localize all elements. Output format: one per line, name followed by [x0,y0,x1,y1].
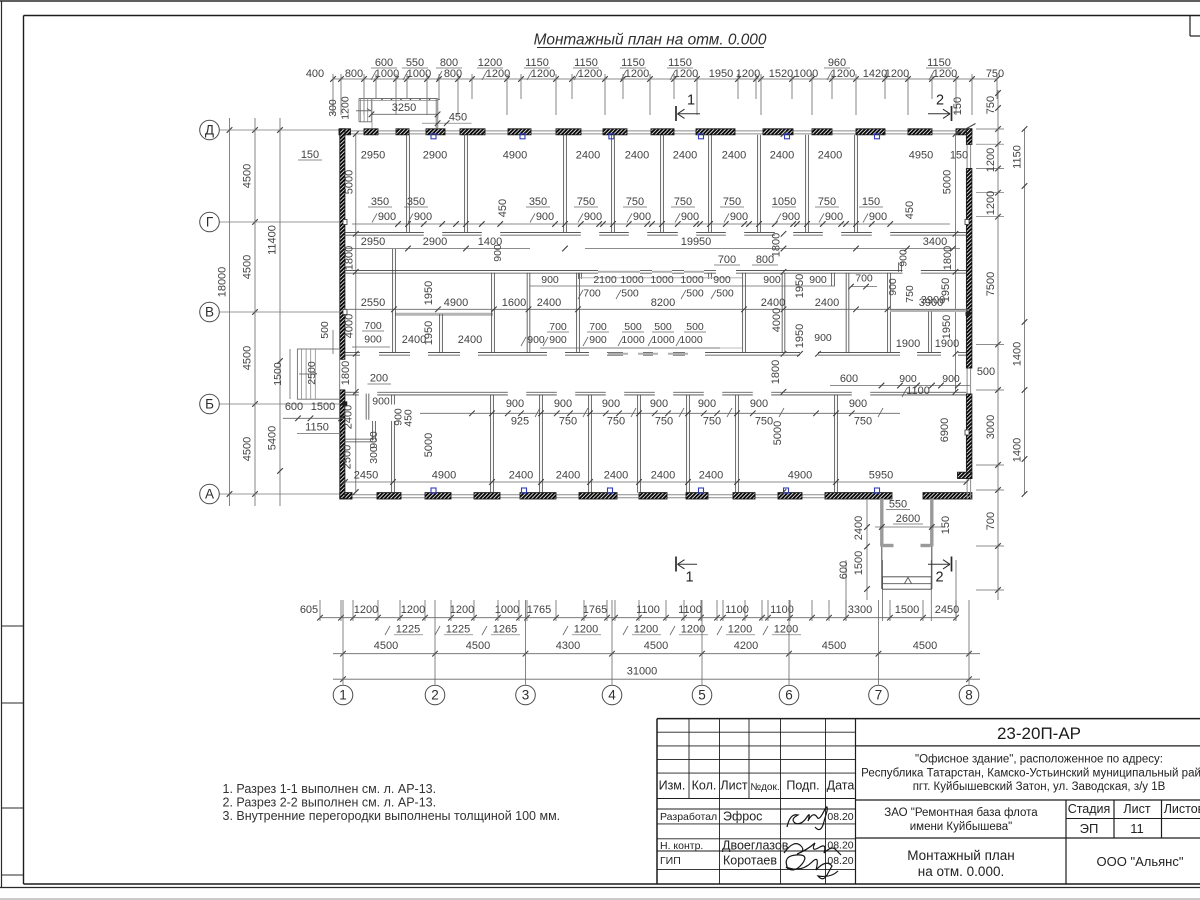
svg-text:500: 500 [654,321,672,333]
svg-text:3000: 3000 [985,415,997,439]
svg-text:450: 450 [904,201,916,219]
svg-text:2: 2 [431,688,439,703]
svg-text:900: 900 [378,211,396,223]
svg-text:Монтажный план: Монтажный план [907,848,1015,863]
svg-text:1200: 1200 [674,68,698,80]
svg-text:1200: 1200 [831,68,855,80]
svg-text:4900: 4900 [503,150,527,162]
svg-text:1500: 1500 [272,362,284,386]
svg-text:2600: 2600 [896,513,920,525]
svg-text:1520: 1520 [769,68,793,80]
svg-text:900: 900 [414,211,432,223]
svg-text:1200: 1200 [578,68,602,80]
svg-text:700: 700 [364,320,382,332]
svg-text:1800: 1800 [770,360,782,384]
svg-text:900: 900 [549,334,567,346]
svg-text:3250: 3250 [392,102,416,114]
svg-text:2400: 2400 [853,516,865,540]
svg-text:1200: 1200 [574,624,598,636]
svg-text:500: 500 [624,321,642,333]
svg-text:2400: 2400 [509,470,533,482]
svg-text:1: 1 [685,570,693,586]
svg-text:750: 750 [674,196,692,208]
svg-text:750: 750 [986,68,1004,80]
svg-text:Кол.: Кол. [692,779,717,793]
svg-text:750: 750 [818,196,836,208]
svg-text:2400: 2400 [625,150,649,162]
svg-text:150: 150 [862,196,880,208]
svg-text:1225: 1225 [446,624,470,636]
svg-text:Подп.: Подп. [786,779,819,793]
svg-text:4900: 4900 [444,297,468,309]
svg-text:5400: 5400 [267,426,279,450]
svg-text:2950: 2950 [361,150,385,162]
svg-text:900: 900 [527,334,545,346]
svg-text:3: 3 [522,688,530,703]
svg-text:1200: 1200 [885,68,909,80]
svg-text:550: 550 [889,499,907,511]
svg-text:2400: 2400 [673,150,697,162]
svg-text:2450: 2450 [935,604,959,616]
svg-text:имени Куйбышева": имени Куйбышева" [910,821,1013,833]
svg-text:1000: 1000 [620,274,644,286]
svg-text:750: 750 [577,196,595,208]
svg-text:900: 900 [372,396,390,408]
svg-text:500: 500 [686,288,704,300]
svg-text:350: 350 [407,196,425,208]
svg-text:1950: 1950 [423,281,435,305]
svg-text:1100: 1100 [725,604,749,616]
svg-text:700: 700 [549,321,567,333]
svg-text:500: 500 [686,321,704,333]
svg-text:450: 450 [449,112,467,124]
svg-text:ЗАО "Ремонтная база флота: ЗАО "Ремонтная база флота [884,807,1038,819]
svg-text:А: А [205,487,214,502]
svg-text:900: 900 [869,211,887,223]
svg-text:1150: 1150 [305,422,329,434]
svg-text:1000: 1000 [650,274,674,286]
svg-text:1200: 1200 [625,68,649,80]
svg-text:1000: 1000 [679,334,703,346]
svg-text:7: 7 [875,688,883,703]
svg-text:2400: 2400 [537,297,561,309]
svg-text:1900: 1900 [935,338,959,350]
svg-text:2400: 2400 [576,150,600,162]
svg-text:1225: 1225 [396,624,420,636]
svg-text:7500: 7500 [985,272,997,296]
svg-text:8200: 8200 [651,297,675,309]
svg-text:2100: 2100 [593,274,617,286]
svg-text:600: 600 [285,401,303,413]
svg-text:5000: 5000 [772,421,784,445]
svg-text:900: 900 [849,398,867,410]
svg-text:1050: 1050 [772,196,796,208]
svg-text:750: 750 [854,416,872,428]
svg-text:11400: 11400 [267,225,279,255]
svg-text:1500: 1500 [311,401,335,413]
svg-text:750: 750 [655,416,673,428]
svg-text:ООО "Альянс": ООО "Альянс" [1097,854,1184,869]
svg-text:2500: 2500 [306,361,318,385]
svg-text:пгт. Куйбышевский Затон, ул. З: пгт. Куйбышевский Затон, ул. Заводская, … [913,781,1166,793]
svg-text:800: 800 [756,254,774,266]
svg-text:4300: 4300 [556,640,580,652]
svg-text:19950: 19950 [681,236,712,248]
svg-text:1200: 1200 [774,624,798,636]
svg-text:4500: 4500 [242,437,254,461]
svg-text:Изм.: Изм. [659,779,686,793]
svg-text:5000: 5000 [344,170,356,194]
svg-text:600: 600 [840,373,858,385]
svg-text:3900: 3900 [921,295,945,307]
svg-text:1200: 1200 [681,624,705,636]
svg-text:Лист: Лист [720,779,747,793]
svg-text:1200: 1200 [486,68,510,80]
svg-text:1200: 1200 [531,68,555,80]
svg-text:750: 750 [985,96,997,114]
svg-text:4950: 4950 [909,150,933,162]
svg-text:150: 150 [301,149,319,161]
svg-text:1000: 1000 [680,274,704,286]
svg-text:900: 900 [633,211,651,223]
svg-text:1. Разрез 1-1 выполнен см. л.: 1. Разрез 1-1 выполнен см. л. АР-13. [223,782,437,796]
svg-text:1100: 1100 [636,604,660,616]
svg-text:08.20: 08.20 [827,811,853,823]
svg-text:Республика Татарстан, Камско-У: Республика Татарстан, Камско-Устьинский … [861,768,1200,780]
svg-text:1950: 1950 [941,315,953,339]
svg-text:1200: 1200 [340,96,352,120]
svg-text:1420: 1420 [863,68,887,80]
svg-text:Г: Г [206,215,214,230]
svg-text:2400: 2400 [604,470,628,482]
svg-text:ГИП: ГИП [660,855,681,867]
svg-text:700: 700 [855,273,873,285]
svg-text:2400: 2400 [458,334,482,346]
svg-text:Разработал: Разработал [660,811,717,823]
svg-text:4200: 4200 [734,640,758,652]
svg-text:300: 300 [327,99,339,117]
svg-text:700: 700 [589,321,607,333]
svg-text:900: 900 [814,332,832,344]
svg-text:4500: 4500 [242,255,254,279]
svg-text:1265: 1265 [493,624,517,636]
svg-text:900: 900 [492,244,504,262]
svg-text:800: 800 [444,68,462,80]
svg-text:11: 11 [1130,821,1144,836]
svg-text:1900: 1900 [896,338,920,350]
svg-text:1765: 1765 [527,604,551,616]
svg-text:1800: 1800 [942,246,954,270]
svg-text:750: 750 [904,285,916,303]
svg-text:2: 2 [935,570,943,586]
svg-text:на отм. 0.000.: на отм. 0.000. [918,864,1004,879]
svg-text:1200: 1200 [450,604,474,616]
svg-text:2950: 2950 [361,236,385,248]
svg-text:1000: 1000 [621,334,645,346]
svg-text:925: 925 [511,416,529,428]
svg-text:2900: 2900 [423,150,447,162]
svg-text:900: 900 [730,211,748,223]
svg-text:200: 200 [370,373,388,385]
svg-text:2. Разрез 2-2 выполнен см. л.: 2. Разрез 2-2 выполнен см. л. АР-13. [223,796,437,810]
svg-text:900: 900 [898,249,910,267]
svg-text:"Офисное здание", расположенно: "Офисное здание", расположенное по адрес… [915,754,1163,766]
svg-text:1500: 1500 [853,551,865,575]
svg-text:1950: 1950 [709,68,733,80]
svg-text:1200: 1200 [401,604,425,616]
svg-text:1800: 1800 [340,361,352,385]
svg-text:900: 900 [589,334,607,346]
svg-text:2400: 2400 [343,405,355,429]
svg-text:2400: 2400 [761,297,785,309]
svg-text:500: 500 [977,366,995,378]
svg-text:600: 600 [838,561,850,579]
svg-text:900: 900 [825,211,843,223]
svg-text:Б: Б [205,397,214,412]
svg-text:ЭП: ЭП [1080,821,1099,836]
svg-text:5950: 5950 [869,470,893,482]
svg-text:1200: 1200 [933,68,957,80]
svg-text:4500: 4500 [644,640,668,652]
svg-text:900: 900 [763,274,781,286]
svg-text:1765: 1765 [583,604,607,616]
svg-text:1400: 1400 [1012,438,1024,462]
svg-text:350: 350 [371,196,389,208]
svg-text:4500: 4500 [466,640,490,652]
svg-text:2400: 2400 [402,334,426,346]
svg-text:1800: 1800 [344,246,356,270]
svg-text:700: 700 [583,288,601,300]
svg-text:2500: 2500 [342,445,354,469]
svg-text:6900: 6900 [939,418,951,442]
svg-text:8: 8 [965,688,973,703]
svg-text:900: 900 [368,431,380,449]
svg-text:1200: 1200 [634,624,658,636]
svg-text:2900: 2900 [423,236,447,248]
svg-text:900: 900 [541,274,559,286]
svg-text:150: 150 [940,516,952,534]
svg-text:4500: 4500 [913,640,937,652]
svg-text:3. Внутренние перегородки выпо: 3. Внутренние перегородки выполнены толщ… [223,809,561,823]
svg-text:350: 350 [529,196,547,208]
svg-text:1500: 1500 [895,604,919,616]
svg-text:750: 750 [626,196,644,208]
svg-text:4500: 4500 [242,164,254,188]
svg-text:№док.: №док. [750,782,779,793]
svg-text:450: 450 [497,199,509,217]
svg-text:750: 750 [755,416,773,428]
svg-text:750: 750 [703,416,721,428]
svg-text:08.20: 08.20 [827,840,853,852]
svg-text:900: 900 [584,211,602,223]
svg-text:4900: 4900 [432,470,456,482]
svg-text:900: 900 [650,398,668,410]
svg-text:5: 5 [698,688,706,703]
svg-text:1100: 1100 [770,604,794,616]
svg-text:Стадия: Стадия [1068,802,1111,816]
svg-text:1200: 1200 [985,148,997,172]
svg-text:23-20П-АР: 23-20П-АР [997,724,1081,743]
svg-text:1000: 1000 [407,68,431,80]
svg-text:605: 605 [300,604,318,616]
svg-text:900: 900 [750,398,768,410]
svg-text:700: 700 [718,254,736,266]
svg-text:2400: 2400 [815,297,839,309]
svg-text:1400: 1400 [1012,342,1024,366]
svg-text:1000: 1000 [794,68,818,80]
svg-text:900: 900 [942,373,960,385]
svg-text:Эфрос: Эфрос [723,810,762,824]
svg-text:6: 6 [785,688,793,703]
svg-text:1100: 1100 [678,604,702,616]
svg-text:Двоеглазов: Двоеглазов [722,839,789,853]
svg-text:900: 900 [782,211,800,223]
svg-text:900: 900 [681,211,699,223]
svg-text:В: В [205,305,214,320]
svg-text:1200: 1200 [354,604,378,616]
svg-text:2400: 2400 [556,470,580,482]
svg-text:750: 750 [723,196,741,208]
svg-text:4500: 4500 [242,346,254,370]
svg-text:700: 700 [985,512,997,530]
svg-text:900: 900 [506,398,524,410]
svg-text:1000: 1000 [375,68,399,80]
svg-text:4500: 4500 [822,640,846,652]
svg-text:1000: 1000 [651,334,675,346]
svg-text:900: 900 [698,398,716,410]
svg-text:2400: 2400 [770,150,794,162]
svg-text:750: 750 [559,416,577,428]
svg-text:31000: 31000 [627,666,658,678]
svg-text:1600: 1600 [502,297,526,309]
svg-text:1200: 1200 [985,191,997,215]
svg-text:2: 2 [936,93,944,109]
svg-text:Дата: Дата [827,779,855,793]
svg-text:Коротаев: Коротаев [723,854,777,868]
svg-text:4900: 4900 [788,470,812,482]
svg-text:800: 800 [345,68,363,80]
svg-text:4: 4 [608,688,616,703]
svg-text:500: 500 [319,321,331,339]
svg-text:900: 900 [809,274,827,286]
svg-text:900: 900 [554,398,572,410]
svg-text:500: 500 [716,288,734,300]
svg-text:5000: 5000 [942,170,954,194]
svg-text:900: 900 [713,274,731,286]
svg-text:5000: 5000 [423,433,435,457]
svg-text:Монтажный план на отм. 0.000: Монтажный план на отм. 0.000 [534,32,767,49]
svg-text:1000: 1000 [495,604,519,616]
svg-text:400: 400 [306,68,324,80]
svg-text:2400: 2400 [722,150,746,162]
svg-text:900: 900 [364,334,382,346]
svg-text:1200: 1200 [728,624,752,636]
svg-text:1: 1 [339,688,347,703]
svg-text:18000: 18000 [217,267,229,298]
svg-text:4500: 4500 [374,640,398,652]
svg-text:900: 900 [536,211,554,223]
svg-text:300: 300 [368,446,380,464]
svg-text:2450: 2450 [354,470,378,482]
svg-text:1200: 1200 [736,68,760,80]
svg-text:900: 900 [602,398,620,410]
svg-text:4000: 4000 [344,314,356,338]
svg-text:500: 500 [621,288,639,300]
svg-text:Листов: Листов [1164,802,1200,816]
svg-text:2400: 2400 [699,470,723,482]
svg-text:150: 150 [952,97,964,115]
svg-text:Лист: Лист [1123,802,1150,816]
svg-text:4000: 4000 [771,308,783,332]
svg-text:3300: 3300 [848,604,872,616]
svg-text:Д: Д [205,123,214,138]
svg-text:1150: 1150 [1012,145,1024,169]
svg-text:1: 1 [687,93,695,109]
svg-text:150: 150 [950,150,968,162]
svg-text:900: 900 [393,408,405,426]
svg-text:Н. контр.: Н. контр. [660,840,703,852]
svg-text:750: 750 [607,416,625,428]
svg-text:2550: 2550 [361,297,385,309]
svg-text:1950: 1950 [794,324,806,348]
svg-text:900: 900 [887,278,899,296]
svg-text:2400: 2400 [651,470,675,482]
svg-text:2400: 2400 [818,150,842,162]
